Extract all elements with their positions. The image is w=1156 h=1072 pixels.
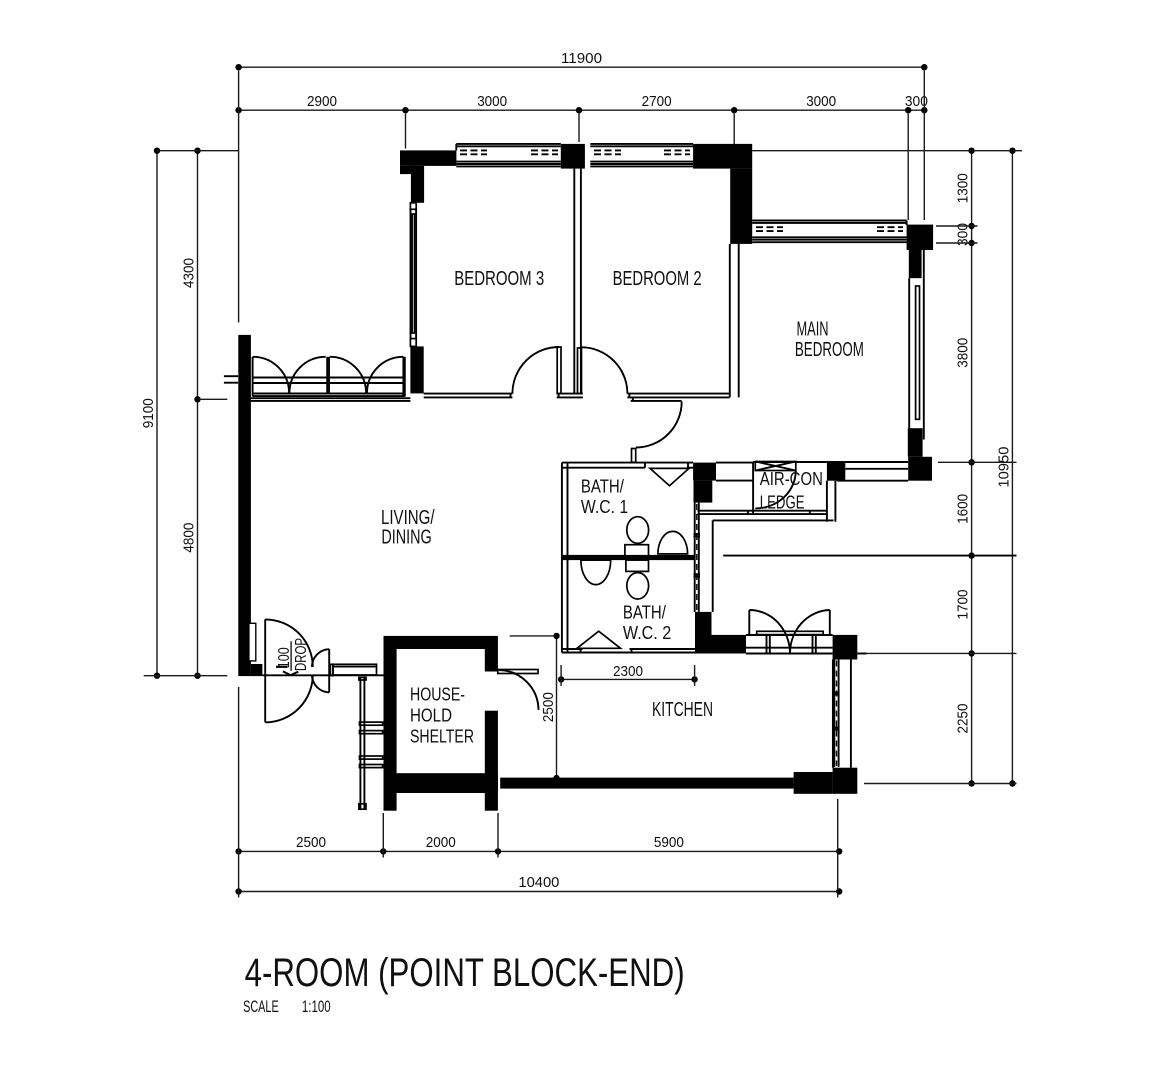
svg-text:BATH/: BATH/ [623,603,666,623]
svg-text:MAIN: MAIN [797,319,829,341]
svg-text:4800: 4800 [181,523,198,553]
svg-text:AIR-CON: AIR-CON [760,469,823,489]
svg-text:DROP: DROP [293,638,310,671]
svg-text:1600: 1600 [955,494,972,524]
svg-text:1700: 1700 [955,590,972,620]
svg-text:BEDROOM 3: BEDROOM 3 [454,268,544,290]
svg-text:2900: 2900 [307,93,337,110]
svg-text:2300: 2300 [613,663,643,680]
svg-text:LEDGE: LEDGE [760,492,805,512]
svg-text:2500: 2500 [296,834,326,851]
svg-text:2000: 2000 [426,834,456,851]
svg-text:3000: 3000 [806,93,836,110]
svg-text:W.C. 2: W.C. 2 [623,623,671,643]
svg-text:10950: 10950 [995,447,1012,488]
svg-text:1:100: 1:100 [302,998,331,1016]
svg-text:10400: 10400 [518,874,559,891]
svg-text:5900: 5900 [654,834,684,851]
svg-text:HOLD: HOLD [410,706,452,726]
svg-text:W.C. 1: W.C. 1 [581,497,628,517]
svg-text:DINING: DINING [381,526,431,548]
svg-text:BEDROOM 2: BEDROOM 2 [613,268,702,290]
svg-text:2500: 2500 [540,692,557,722]
svg-text:100: 100 [276,647,293,668]
svg-text:SHELTER: SHELTER [410,727,474,747]
svg-text:BATH/: BATH/ [581,476,624,496]
svg-text:HOUSE-: HOUSE- [410,685,465,705]
svg-text:1300: 1300 [955,173,972,203]
svg-text:9100: 9100 [140,398,157,428]
svg-text:KITCHEN: KITCHEN [652,699,713,721]
svg-text:11900: 11900 [561,50,602,67]
svg-text:3000: 3000 [477,93,507,110]
svg-text:2700: 2700 [642,93,672,110]
svg-text:2250: 2250 [955,704,972,734]
svg-text:SCALE: SCALE [243,998,279,1016]
svg-text:4-ROOM (POINT BLOCK-END): 4-ROOM (POINT BLOCK-END) [245,951,685,995]
svg-text:BEDROOM: BEDROOM [795,339,864,361]
svg-text:4300: 4300 [181,258,198,288]
svg-text:3800: 3800 [955,338,972,368]
